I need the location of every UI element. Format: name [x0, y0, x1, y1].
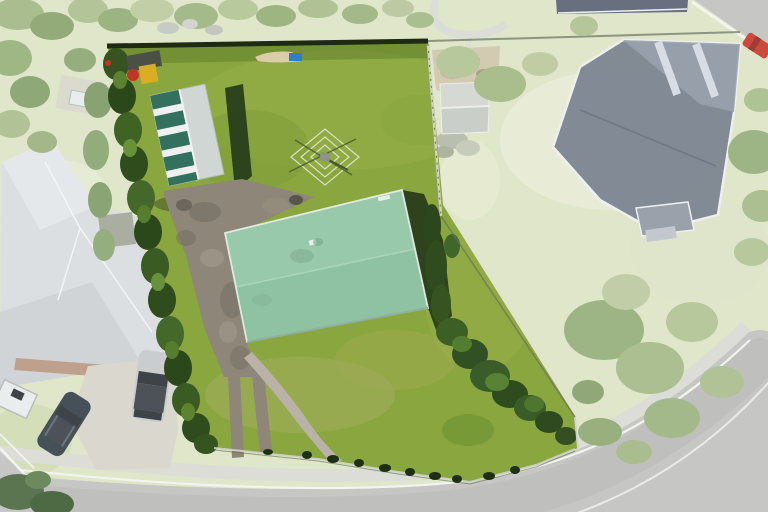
- driveway-stain: [262, 198, 290, 214]
- hedge-clump: [194, 434, 218, 454]
- hedge-clump: [181, 403, 195, 421]
- boundary-tree-canopy: [444, 234, 460, 258]
- frontage-bush: [354, 459, 364, 467]
- roof-stain: [313, 238, 323, 246]
- hedge-clump: [113, 71, 127, 89]
- frontage-bush: [327, 455, 339, 463]
- roof-stain: [290, 249, 314, 263]
- kayak-blue-cover: [289, 53, 302, 61]
- hedge-clump: [165, 341, 179, 359]
- faded-tree-canopy: [572, 380, 604, 404]
- faded-tree-canopy: [64, 48, 96, 72]
- faded-tree-canopy: [436, 46, 480, 78]
- frontage-bush: [379, 464, 391, 472]
- boundary-tree-canopy: [555, 427, 577, 445]
- street-tree-canopy: [25, 471, 51, 489]
- faded-tree-canopy: [578, 418, 622, 446]
- frontage-bush: [452, 475, 462, 483]
- faded-tree-canopy: [182, 19, 198, 29]
- roof-stain: [252, 294, 272, 306]
- driveway-stain: [176, 230, 196, 246]
- faded-tree-canopy: [256, 5, 296, 27]
- frontage-bush: [483, 472, 495, 480]
- aerial-photo-canvas: [0, 0, 768, 512]
- hedge-clump: [123, 139, 137, 157]
- faded-tree-canopy: [700, 366, 744, 398]
- neighbor-shed-bottom-slope: [441, 106, 489, 134]
- faded-tree-canopy: [10, 76, 50, 108]
- faded-tree-canopy: [644, 398, 700, 438]
- play-red-dot: [105, 60, 111, 66]
- faded-tree-canopy: [30, 12, 74, 40]
- faded-tree-canopy: [616, 342, 684, 394]
- boundary-tree-canopy: [452, 336, 472, 352]
- driveway-stain: [189, 202, 221, 222]
- faded-tree-canopy: [522, 52, 558, 76]
- boundary-tree-canopy: [425, 240, 447, 292]
- faded-tree-canopy: [88, 182, 112, 218]
- faded-tree-canopy: [666, 302, 718, 342]
- clothesline-center: [319, 152, 330, 162]
- frontage-bush: [302, 451, 312, 459]
- driveway-stain: [200, 249, 224, 267]
- lawn-tone-patch: [442, 414, 494, 446]
- faded-tree-canopy: [602, 274, 650, 310]
- rubble-pile: [456, 140, 480, 156]
- driveway-stain: [219, 321, 237, 343]
- aerial-property-photo: [0, 0, 768, 512]
- faded-tree-canopy: [93, 229, 115, 261]
- play-red-ball: [127, 69, 139, 81]
- car-silver-roof: [134, 383, 167, 413]
- frontage-bush: [429, 472, 441, 480]
- faded-tree-canopy: [205, 25, 223, 35]
- faded-tree-canopy: [616, 440, 652, 464]
- play-yellow-cube: [139, 64, 159, 85]
- faded-tree-canopy: [406, 12, 434, 28]
- hedge-clump: [151, 273, 165, 291]
- driveway-stain: [176, 199, 192, 211]
- faded-tree-canopy: [27, 131, 57, 153]
- hedge-clump: [137, 205, 151, 223]
- faded-tree-canopy: [570, 16, 598, 36]
- boundary-tree-canopy: [485, 373, 509, 391]
- driveway-stain: [289, 195, 303, 205]
- faded-tree-canopy: [83, 130, 109, 170]
- frontage-bush: [263, 449, 273, 455]
- faded-tree-canopy: [84, 82, 112, 118]
- faded-tree-canopy: [157, 22, 179, 34]
- boundary-tree-canopy: [524, 396, 544, 412]
- frontage-bush: [510, 466, 520, 474]
- faded-tree-canopy: [474, 66, 526, 102]
- boundary-tree-canopy: [431, 284, 451, 324]
- frontage-bush: [405, 468, 415, 476]
- faded-tree-canopy: [342, 4, 378, 24]
